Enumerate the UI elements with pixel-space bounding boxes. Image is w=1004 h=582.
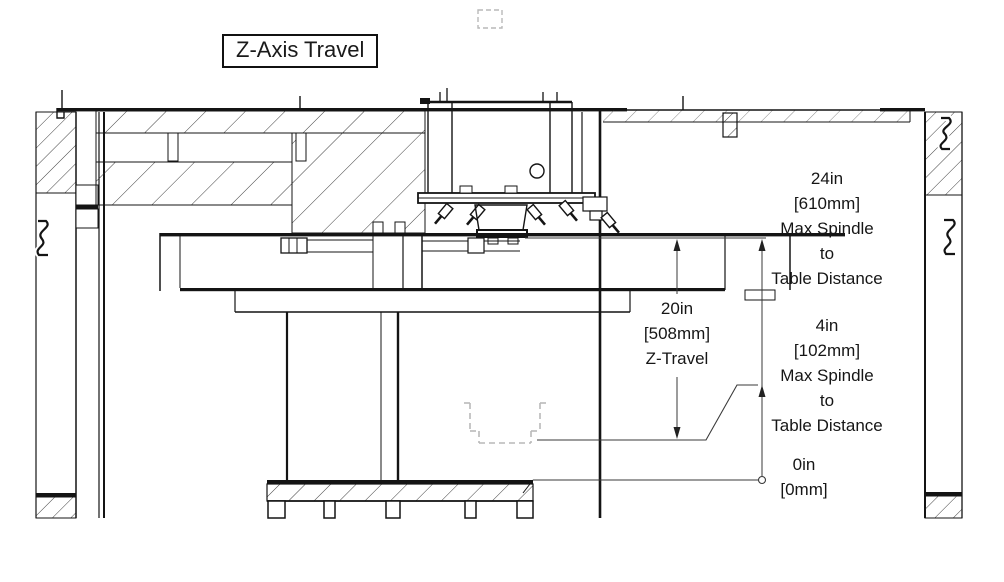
annotation-zero-reference: 0in [0mm] (780, 452, 827, 502)
annotation-min-spindle-distance: 4in [102mm] Max Spindle to Table Distanc… (771, 313, 883, 438)
min-spindle-inches: 4in (771, 313, 883, 338)
zero-mm: [0mm] (780, 477, 827, 502)
max-spindle-mm: [610mm] (771, 191, 883, 216)
max-spindle-inches: 24in (771, 166, 883, 191)
head-bolt-hole (530, 164, 544, 178)
top-enclosure-beam (57, 96, 627, 233)
coolant-nozzle (527, 205, 548, 228)
z-travel-mm: [508mm] (644, 321, 710, 346)
max-spindle-label-2: to (771, 241, 883, 266)
annotation-z-travel: 20in [508mm] Z-Travel (639, 296, 715, 371)
drawing-canvas: Z-Axis Travel 24in [610mm] Max Spindle t… (0, 0, 1004, 582)
pedestal-column (287, 312, 398, 480)
machine-base (267, 480, 533, 518)
ghost-spindle-outline (464, 403, 546, 443)
drawing-title-text: Z-Axis Travel (236, 37, 364, 62)
left-wall (36, 90, 104, 518)
right-wall (880, 108, 962, 518)
coolant-nozzle (464, 205, 485, 228)
z-travel-label: Z-Travel (644, 346, 710, 371)
max-spindle-label-3: Table Distance (771, 266, 883, 291)
zero-inches: 0in (780, 452, 827, 477)
coolant-nozzle (432, 204, 453, 227)
coolant-nozzle (559, 201, 580, 224)
min-spindle-label-1: Max Spindle (771, 363, 883, 388)
max-spindle-label-1: Max Spindle (771, 216, 883, 241)
table-saddle (160, 222, 845, 312)
machine-section-drawing (0, 0, 1004, 582)
ghost-top-marker (478, 10, 502, 28)
z-travel-inches: 20in (644, 296, 710, 321)
column-and-right-lip (582, 96, 910, 518)
drawing-title: Z-Axis Travel (222, 34, 378, 68)
annotation-max-spindle-distance: 24in [610mm] Max Spindle to Table Distan… (771, 166, 883, 291)
coolant-nozzle (601, 213, 622, 236)
min-spindle-mm: [102mm] (771, 338, 883, 363)
min-spindle-label-3: Table Distance (771, 413, 883, 438)
min-spindle-label-2: to (771, 388, 883, 413)
